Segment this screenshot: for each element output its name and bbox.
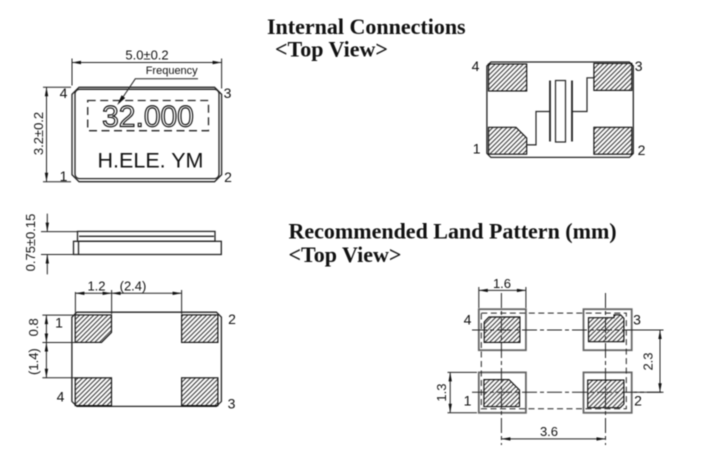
svg-text:2: 2 (638, 142, 646, 158)
svg-text:4: 4 (472, 58, 480, 74)
svg-text:0.8: 0.8 (26, 318, 41, 336)
svg-text:1.6: 1.6 (493, 276, 511, 291)
svg-text:Internal Connections: Internal Connections (267, 14, 466, 39)
svg-text:3: 3 (635, 58, 643, 74)
svg-text:1: 1 (55, 315, 63, 331)
svg-text:2: 2 (228, 311, 236, 327)
svg-text:2: 2 (224, 169, 232, 185)
svg-text:(2.4): (2.4) (120, 279, 147, 294)
svg-text:H.ELE. YM: H.ELE. YM (98, 148, 204, 172)
svg-text:1.3: 1.3 (434, 384, 449, 402)
svg-text:5.0±0.2: 5.0±0.2 (125, 48, 168, 63)
svg-text:3: 3 (633, 312, 641, 328)
svg-text:32.000: 32.000 (102, 101, 194, 134)
svg-text:3.6: 3.6 (540, 424, 558, 439)
svg-text:0.75±0.15: 0.75±0.15 (23, 214, 38, 272)
svg-text:Recommended Land Pattern (mm): Recommended Land Pattern (mm) (289, 219, 617, 244)
svg-text:1.2: 1.2 (87, 279, 105, 294)
svg-text:1: 1 (473, 141, 481, 157)
svg-text:3.2±0.2: 3.2±0.2 (31, 112, 46, 155)
svg-text:Frequency: Frequency (146, 65, 198, 77)
svg-text:4: 4 (57, 389, 65, 405)
svg-text:1: 1 (464, 392, 472, 408)
svg-text:<Top View>: <Top View> (275, 36, 388, 61)
svg-text:(1.4): (1.4) (26, 348, 41, 375)
svg-text:4: 4 (464, 312, 472, 328)
svg-text:2.3: 2.3 (641, 352, 656, 370)
svg-text:2: 2 (634, 393, 642, 409)
svg-text:<Top View>: <Top View> (289, 242, 402, 267)
svg-text:3: 3 (224, 85, 232, 101)
svg-text:3: 3 (228, 396, 236, 412)
